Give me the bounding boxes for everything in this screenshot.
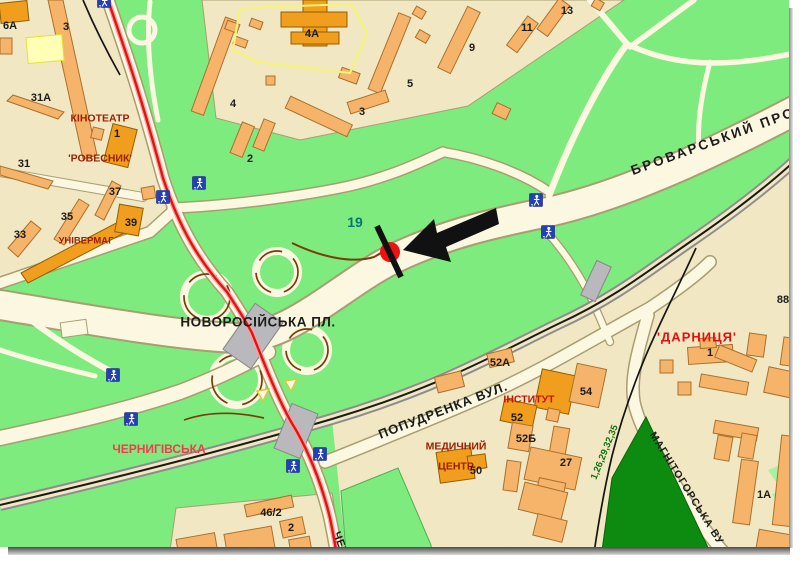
place-label: 'РОВЕСНИК' [68, 153, 132, 165]
place-label: 'ДАРНИЦЯ' [657, 330, 737, 345]
building-number: 52 [511, 412, 523, 424]
building-number: 27 [560, 457, 572, 469]
building-number: 4 [230, 98, 237, 110]
building-number: 1 [114, 128, 120, 140]
place-label: КІНОТЕАТР [71, 113, 130, 125]
building-number: 3 [359, 106, 365, 118]
building-number: 39 [125, 217, 137, 229]
pedestrian-crossing-icon [157, 191, 170, 204]
pedestrian-crossing-icon [530, 194, 543, 207]
building-number: 11 [521, 22, 533, 34]
building-number: 37 [109, 186, 121, 198]
pedestrian-crossing-icon [193, 177, 206, 190]
building-number: 4А [305, 28, 319, 40]
building-number: 50 [470, 465, 482, 477]
building-number: 19 [347, 214, 363, 230]
building-number: 6А [3, 20, 17, 32]
pedestrian-crossing-icon [314, 448, 327, 461]
park-structure [60, 319, 88, 337]
street-label: НОВОРОСІЙСЬКА ПЛ. [180, 315, 335, 330]
map-content: БРОВАРСЬКИЙ ПРОНОВОРОСІЙСЬКА ПЛ.ПОПУДРЕН… [0, 0, 800, 565]
building-number: 52А [490, 357, 510, 369]
building-number: 1А [757, 489, 771, 501]
building-number: 54 [580, 386, 593, 398]
building-number: 3 [63, 21, 69, 33]
building-number: 9 [469, 42, 475, 54]
map-screenshot: БРОВАРСЬКИЙ ПРОНОВОРОСІЙСЬКА ПЛ.ПОПУДРЕН… [0, 0, 800, 565]
building-number: 1 [707, 347, 713, 359]
frame-shadow-bottom [8, 547, 790, 555]
building-number: 31А [31, 92, 51, 104]
building-number: 52Б [516, 433, 536, 445]
pedestrian-crossing-icon [125, 413, 138, 426]
pedestrian-crossing-icon [542, 226, 555, 239]
building-number: 5 [407, 78, 413, 90]
pedestrian-crossing-icon [287, 460, 300, 473]
place-label: УНІВЕРМАГ [59, 235, 115, 246]
pedestrian-crossing-icon [98, 0, 111, 8]
building-number: 13 [561, 5, 573, 17]
building-number: 46/2 [260, 507, 281, 519]
place-label: ІНСТИТУТ [503, 394, 555, 406]
building-number: 35 [61, 211, 73, 223]
building-number: 2 [247, 153, 253, 165]
place-label: ЧЕРНИГІВСЬКА [112, 442, 206, 456]
building-number: 31 [18, 158, 30, 170]
building-number: 33 [14, 229, 26, 241]
building-number: 88 [777, 294, 789, 306]
frame-shadow-right [789, 8, 793, 548]
building-number: 2 [288, 522, 294, 534]
place-label: ЦЕНТР [438, 461, 474, 473]
place-label: МЕДИЧНИЙ [426, 440, 487, 453]
pedestrian-crossing-icon [107, 369, 120, 382]
map-canvas: БРОВАРСЬКИЙ ПРОНОВОРОСІЙСЬКА ПЛ.ПОПУДРЕН… [0, 0, 800, 565]
